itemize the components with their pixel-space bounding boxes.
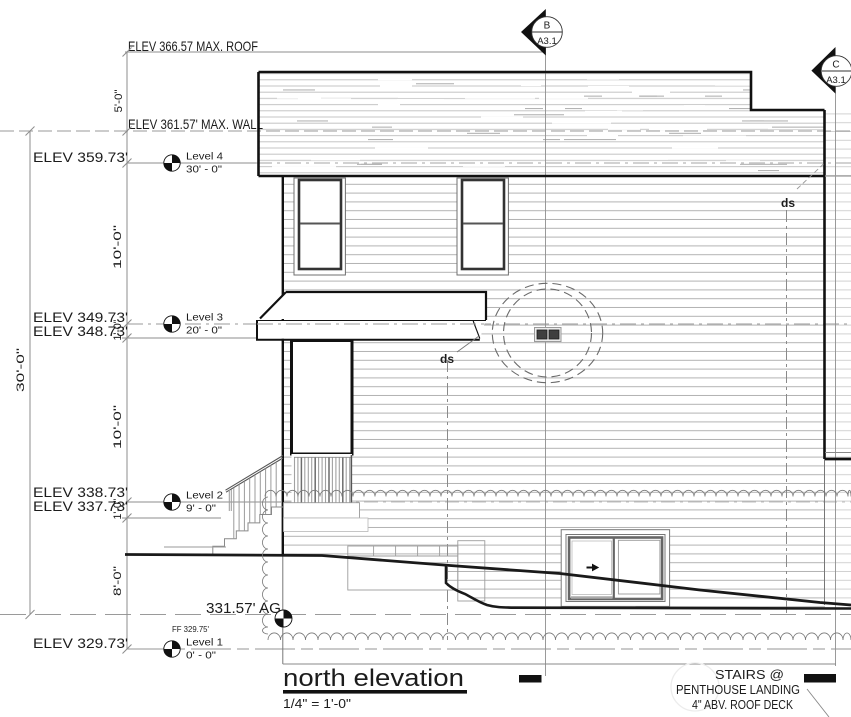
svg-text:Level 2: Level 2 xyxy=(186,490,223,502)
svg-text:30'-0": 30'-0" xyxy=(15,348,27,392)
svg-text:A3.1: A3.1 xyxy=(826,75,846,86)
svg-text:Level 4: Level 4 xyxy=(186,151,223,163)
svg-text:ELEV 359.73': ELEV 359.73' xyxy=(33,150,128,165)
svg-text:north elevation: north elevation xyxy=(283,665,464,692)
svg-text:ELEV 361.57' MAX. WALL: ELEV 361.57' MAX. WALL xyxy=(128,117,263,132)
svg-text:10'-0": 10'-0" xyxy=(112,225,124,269)
svg-text:10'-0": 10'-0" xyxy=(112,405,124,449)
svg-text:STAIRS @: STAIRS @ xyxy=(715,668,784,682)
svg-text:ds: ds xyxy=(781,196,795,210)
svg-text:Level 1: Level 1 xyxy=(186,637,223,649)
svg-text:ELEV 337.73': ELEV 337.73' xyxy=(33,499,128,514)
svg-text:ELEV 349.73': ELEV 349.73' xyxy=(33,310,128,325)
svg-text:ELEV 366.57 MAX. ROOF: ELEV 366.57 MAX. ROOF xyxy=(128,39,258,54)
svg-text:331.57' AG: 331.57' AG xyxy=(206,601,281,617)
svg-text:5'-0": 5'-0" xyxy=(113,89,125,112)
svg-text:ELEV 348.73': ELEV 348.73' xyxy=(33,324,128,339)
svg-text:ELEV 329.73': ELEV 329.73' xyxy=(33,636,128,651)
svg-text:ELEV 338.73': ELEV 338.73' xyxy=(33,485,128,500)
svg-text:30' - 0": 30' - 0" xyxy=(186,164,222,176)
svg-text:FF 329.75': FF 329.75' xyxy=(172,625,209,634)
svg-text:4" ABV. ROOF DECK: 4" ABV. ROOF DECK xyxy=(692,698,794,712)
svg-text:8'-0": 8'-0" xyxy=(112,566,124,596)
svg-text:9' - 0": 9' - 0" xyxy=(186,503,216,515)
svg-text:C: C xyxy=(832,60,839,71)
svg-text:A3.1: A3.1 xyxy=(537,36,557,47)
svg-text:20' - 0": 20' - 0" xyxy=(186,325,222,337)
svg-text:PENTHOUSE LANDING: PENTHOUSE LANDING xyxy=(676,683,800,697)
svg-text:0' - 0": 0' - 0" xyxy=(186,650,216,662)
svg-text:1/4" = 1'-0": 1/4" = 1'-0" xyxy=(283,697,351,711)
svg-text:B: B xyxy=(544,21,551,32)
svg-text:Level 3: Level 3 xyxy=(186,312,223,324)
